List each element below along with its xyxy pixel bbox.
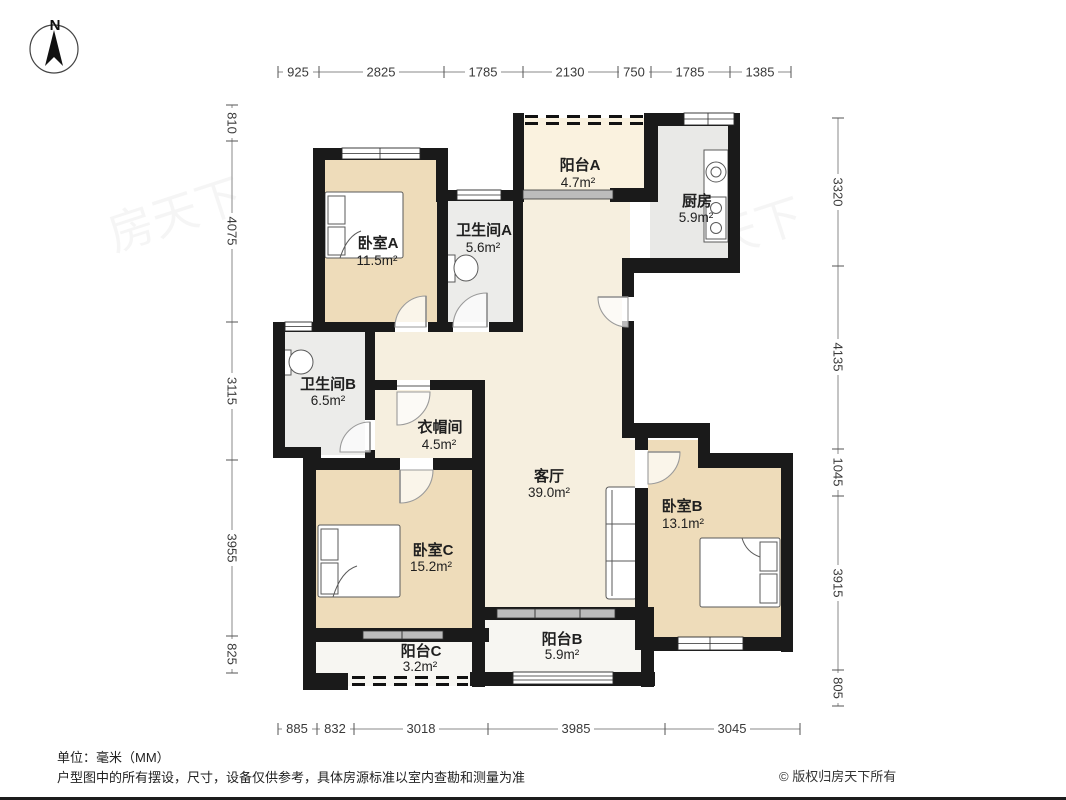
area-bedroom-c: 15.2m² [410, 559, 453, 574]
svg-text:750: 750 [623, 65, 645, 80]
dimensions-bottom: 885 832 3018 3985 3045 [278, 721, 800, 736]
window-balcony-b-bottom [513, 672, 613, 684]
floorplan-canvas: 房天下 房天下 房天下 N [0, 0, 1066, 800]
window-bathroom-b-top [285, 322, 312, 331]
area-bedroom-b: 13.1m² [662, 516, 705, 531]
svg-text:832: 832 [324, 721, 346, 736]
toilet-a [447, 255, 478, 282]
svg-text:2130: 2130 [556, 65, 585, 80]
sofa [606, 487, 637, 599]
window-kitchen-top [684, 113, 734, 125]
svg-text:3018: 3018 [407, 721, 436, 736]
svg-text:3955: 3955 [225, 534, 240, 563]
label-living: 客厅 [533, 467, 564, 485]
label-balcony-b: 阳台B [542, 630, 583, 648]
svg-text:3985: 3985 [562, 721, 591, 736]
area-living: 39.0m² [528, 485, 571, 500]
svg-text:810: 810 [225, 112, 240, 134]
area-bathroom-b: 6.5m² [311, 393, 346, 408]
bed-c [318, 525, 400, 597]
svg-text:1785: 1785 [676, 65, 705, 80]
sliding-door-balcony-c [363, 631, 443, 639]
sliding-door-balcony-b [497, 609, 615, 618]
toilet-b [283, 350, 313, 375]
svg-text:1385: 1385 [746, 65, 775, 80]
svg-text:3915: 3915 [831, 569, 846, 598]
svg-text:1045: 1045 [831, 458, 846, 487]
label-bedroom-c: 卧室C [413, 541, 454, 559]
label-bathroom-b: 卫生间B [300, 375, 356, 393]
svg-text:925: 925 [287, 65, 309, 80]
label-balcony-c: 阳台C [401, 642, 442, 660]
dimensions-right: 3320 4135 1045 3915 805 [831, 118, 846, 706]
svg-text:885: 885 [286, 721, 308, 736]
unit-note: 单位：毫米（MM） [57, 750, 170, 765]
window-bedroom-a-top [342, 148, 420, 159]
area-balcony-a: 4.7m² [561, 175, 596, 190]
area-cloakroom: 4.5m² [422, 437, 457, 452]
label-cloakroom: 衣帽间 [417, 418, 462, 436]
svg-text:3115: 3115 [225, 377, 240, 405]
svg-text:3045: 3045 [718, 721, 747, 736]
svg-text:4135: 4135 [831, 343, 846, 372]
window-bathroom-a-top [457, 190, 501, 200]
area-balcony-c: 3.2m² [403, 659, 438, 674]
label-bedroom-b: 卧室B [662, 497, 703, 515]
disclaimer: 户型图中的所有摆设，尺寸，设备仅供参考，具体房源标准以室内查勘和测量为准 [57, 770, 525, 785]
label-bedroom-a: 卧室A [358, 234, 399, 252]
svg-text:805: 805 [831, 677, 846, 699]
area-kitchen: 5.9m² [679, 210, 714, 225]
window-bedroom-b-bottom [678, 637, 743, 650]
svg-text:825: 825 [225, 643, 240, 665]
area-balcony-b: 5.9m² [545, 647, 580, 662]
svg-text:1785: 1785 [469, 65, 498, 80]
svg-text:3320: 3320 [831, 178, 846, 207]
copyright: © 版权归房天下所有 [779, 769, 896, 784]
sliding-door-balcony-a [523, 190, 613, 199]
label-kitchen: 厨房 [682, 192, 712, 210]
dimensions-top: 925 2825 1785 2130 750 1785 1385 [278, 65, 791, 80]
compass: N [30, 17, 78, 73]
floorplan-page: 房天下 房天下 房天下 N [0, 0, 1066, 800]
area-bedroom-a: 11.5m² [356, 253, 398, 268]
bed-b [700, 538, 780, 607]
label-balcony-a: 阳台A [560, 156, 601, 174]
svg-text:4075: 4075 [225, 217, 240, 246]
area-bathroom-a: 5.6m² [466, 240, 501, 255]
compass-north-label: N [50, 17, 61, 34]
svg-text:2825: 2825 [367, 65, 396, 80]
label-bathroom-a: 卫生间A [456, 221, 512, 239]
